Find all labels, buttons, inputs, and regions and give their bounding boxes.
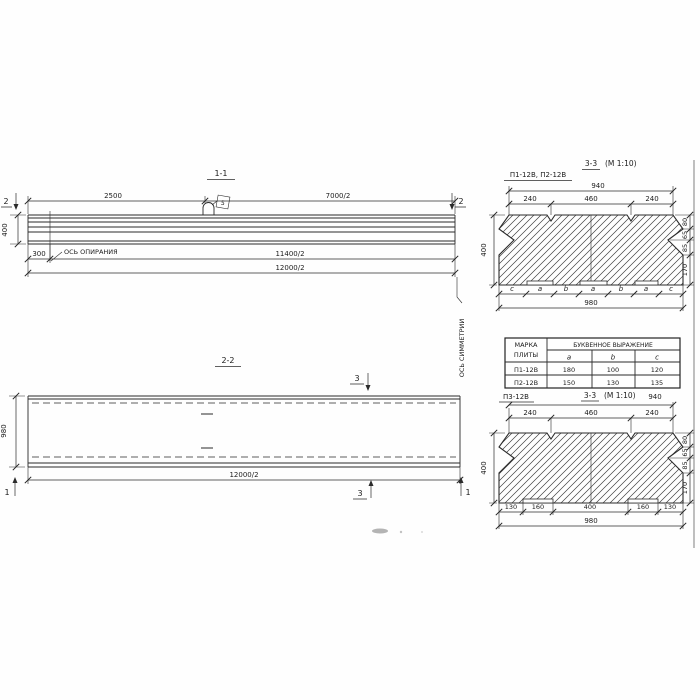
- table-row: П1-12В 180 100 120: [514, 366, 663, 374]
- secB-dim-400: 400: [480, 461, 488, 474]
- svg-text:1: 1: [465, 488, 470, 497]
- svg-text:180: 180: [563, 366, 575, 374]
- svg-text:2: 2: [3, 197, 8, 206]
- svg-text:2: 2: [458, 197, 463, 206]
- table-header-expression: БУКВЕННОЕ ВЫРАЖЕНИЕ: [573, 342, 653, 349]
- dim-12000-2: 12000/2: [275, 264, 304, 272]
- secB-dim-980: 980: [584, 517, 597, 525]
- secB-dim-160a: 160: [532, 503, 544, 511]
- section-2-2: 2-2 3 980 12000/2 1 1: [0, 356, 471, 499]
- table-header-c: c: [655, 354, 659, 362]
- secB-dim-65: 65: [681, 448, 689, 456]
- svg-text:130: 130: [607, 379, 619, 387]
- secB-dim-130b: 130: [664, 503, 676, 511]
- secA-dim-240a: 240: [523, 195, 536, 203]
- section-1-1-title: 1-1: [214, 169, 227, 178]
- dim-height-400: 400: [1, 223, 9, 236]
- bearing-axis-label: ОСЬ ОПИРАНИЯ: [64, 248, 118, 256]
- svg-text:3: 3: [354, 374, 359, 383]
- secA-cut-title: 3-3: [585, 159, 597, 168]
- table-row: П2-12В 150 130 135: [514, 379, 663, 387]
- table-header-b: b: [611, 354, 616, 362]
- secA-dim-460: 460: [584, 195, 597, 203]
- cut-mark-1-left: 1: [4, 477, 17, 497]
- secA-letter-a2: a: [591, 285, 595, 293]
- symmetry-axis-label: ОСЬ СИММЕТРИИ: [458, 319, 466, 378]
- table-header-mark-2: ПЛИТЫ: [514, 351, 539, 359]
- cross-section-b: П3-12В 3-3 (М 1:10) 940 240 460 240 400 …: [480, 391, 694, 529]
- cut-mark-1-right: 1: [459, 477, 471, 497]
- cut-mark-2-left: 2: [1, 193, 19, 210]
- secA-dim-65: 65: [681, 231, 689, 239]
- table-header-mark-1: МАРКА: [514, 341, 538, 349]
- section-2-2-title: 2-2: [221, 356, 234, 365]
- loop-position-tag: 5: [220, 200, 225, 208]
- secA-dim-980: 980: [584, 299, 597, 307]
- secB-dim-85: 85: [681, 461, 689, 469]
- svg-text:1: 1: [4, 488, 9, 497]
- lifting-loop: 5: [203, 195, 230, 215]
- dim-2500: 2500: [104, 192, 122, 200]
- svg-text:П1-12В: П1-12В: [514, 366, 538, 374]
- parameters-table: МАРКА ПЛИТЫ БУКВЕННОЕ ВЫРАЖЕНИЕ a b c П1…: [505, 338, 680, 388]
- center-marks: [201, 414, 213, 448]
- secB-dim-460: 460: [584, 409, 597, 417]
- secA-dim-85: 85: [681, 244, 689, 252]
- secA-dim-170: 170: [681, 264, 689, 276]
- dim-7000-2: 7000/2: [326, 192, 351, 200]
- plate-outline: [28, 396, 460, 467]
- cut-mark-2-right: 2: [450, 193, 467, 210]
- secB-dim-240b: 240: [645, 409, 658, 417]
- svg-text:120: 120: [651, 366, 663, 374]
- dim-width-980: 980: [0, 424, 8, 437]
- secA-dim-240b: 240: [645, 195, 658, 203]
- hidden-edge-lines: [32, 403, 456, 457]
- beam-outline: [28, 215, 455, 244]
- blueprint-canvas: 1-1 2500 7000/2 2 2 5: [0, 0, 700, 700]
- scan-smudge: [372, 529, 423, 534]
- secB-dim-940: 940: [648, 393, 661, 401]
- symmetry-axis: ОСЬ СИММЕТРИИ: [457, 277, 466, 377]
- dim-300: 300: [32, 250, 45, 258]
- cut-mark-3-bottom: 3: [353, 480, 374, 499]
- dim-11400-2: 11400/2: [275, 250, 304, 258]
- secB-dim-130a: 130: [505, 503, 517, 511]
- table-header-a: a: [567, 354, 571, 362]
- secA-letter-b1: b: [564, 285, 569, 293]
- secA-letter-c2: c: [669, 285, 673, 293]
- technical-drawing: 1-1 2500 7000/2 2 2 5: [0, 0, 700, 700]
- secB-cut-title: 3-3: [584, 391, 596, 400]
- secA-dim-400: 400: [480, 243, 488, 256]
- secA-dim-80: 80: [681, 218, 689, 226]
- secA-letter-a1: a: [538, 285, 542, 293]
- secB-dim-160b: 160: [637, 503, 649, 511]
- secA-plates-label: П1-12В, П2-12В: [510, 171, 567, 179]
- secB-scale: (М 1:10): [604, 391, 636, 400]
- secB-dim-170: 170: [681, 482, 689, 494]
- cut-mark-3-top: 3: [350, 373, 371, 391]
- secA-letter-c1: c: [510, 285, 514, 293]
- svg-text:135: 135: [651, 379, 663, 387]
- dim-length-12000-2: 12000/2: [229, 471, 258, 479]
- secA-dim-940: 940: [591, 182, 604, 190]
- secA-letter-b2: b: [619, 285, 624, 293]
- svg-text:П2-12В: П2-12В: [514, 379, 538, 387]
- secB-plate-label: П3-12В: [503, 393, 529, 401]
- secB-dim-80: 80: [681, 436, 689, 444]
- secA-letter-a3: a: [644, 285, 648, 293]
- secB-dim-400b: 400: [584, 503, 596, 511]
- secA-scale: (М 1:10): [605, 159, 637, 168]
- svg-text:100: 100: [607, 366, 619, 374]
- secB-dim-240a: 240: [523, 409, 536, 417]
- cross-section-a: 3-3 (М 1:10) П1-12В, П2-12В 940 240 460 …: [480, 159, 694, 311]
- svg-text:3: 3: [357, 489, 362, 498]
- svg-text:150: 150: [563, 379, 575, 387]
- section-1-1: 1-1 2500 7000/2 2 2 5: [1, 169, 466, 277]
